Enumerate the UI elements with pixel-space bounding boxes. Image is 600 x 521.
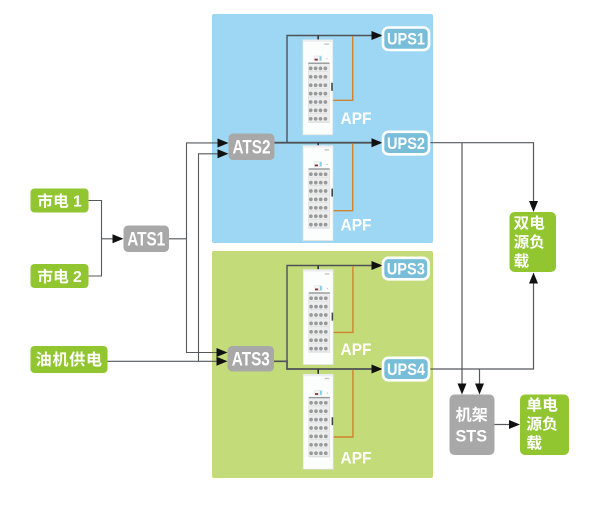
svg-text:ATS1: ATS1 <box>127 230 165 251</box>
svg-text:UPS3: UPS3 <box>387 261 425 279</box>
svg-text:APF: APF <box>341 450 372 468</box>
svg-text:APF: APF <box>341 110 372 128</box>
svg-text:APF: APF <box>341 217 372 235</box>
svg-text:ATS2: ATS2 <box>233 138 271 159</box>
svg-text:STS: STS <box>456 428 488 446</box>
svg-text:APF: APF <box>341 341 372 359</box>
svg-text:UPS4: UPS4 <box>387 361 426 379</box>
svg-text:1: 1 <box>73 194 82 211</box>
svg-text:ATS3: ATS3 <box>232 350 270 371</box>
svg-text:2: 2 <box>73 269 82 286</box>
svg-text:UPS2: UPS2 <box>387 135 425 153</box>
svg-text:UPS1: UPS1 <box>387 31 425 49</box>
